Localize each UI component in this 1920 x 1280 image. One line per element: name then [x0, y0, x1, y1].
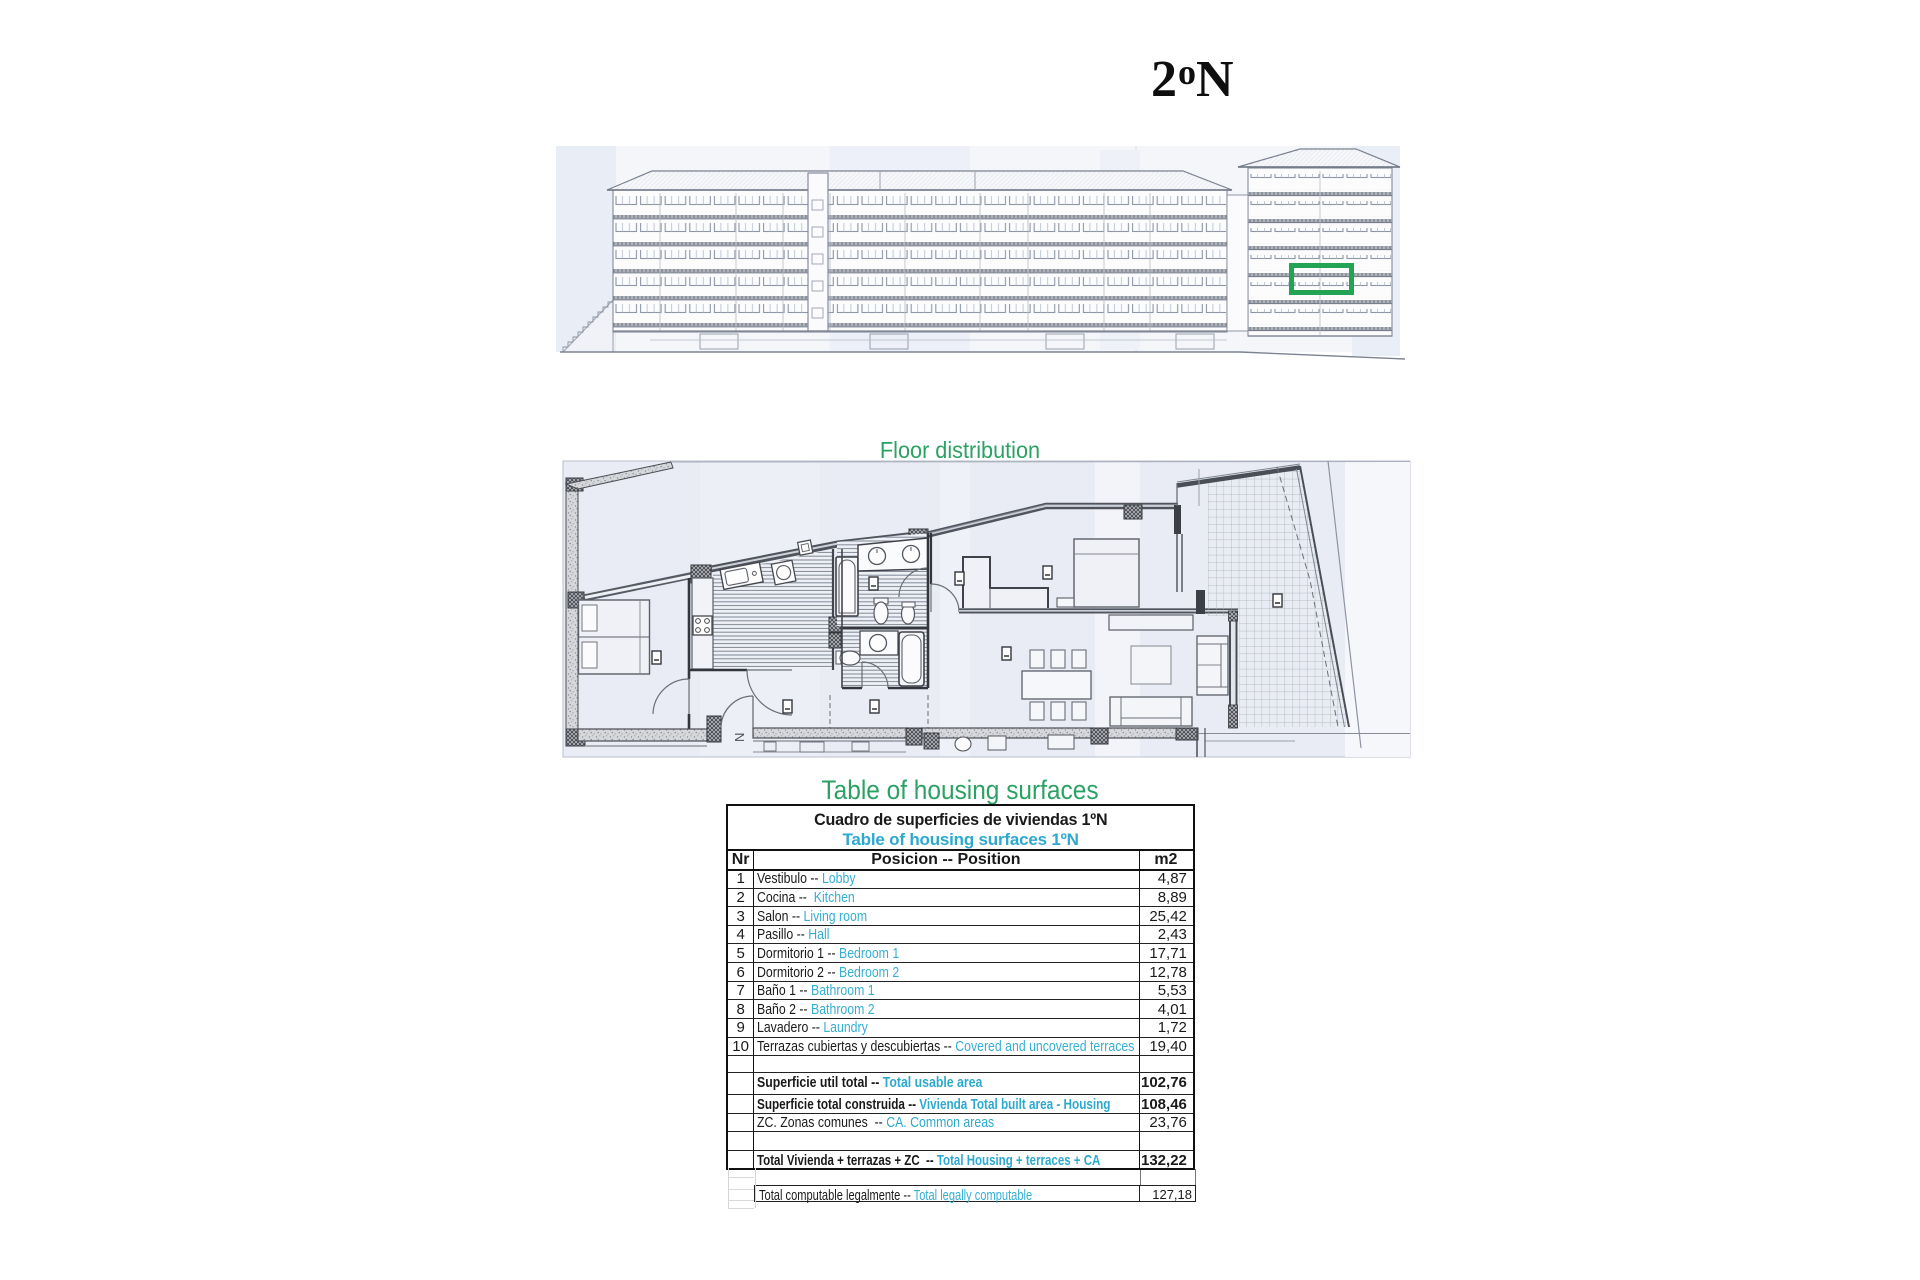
- svg-text:N: N: [732, 733, 747, 742]
